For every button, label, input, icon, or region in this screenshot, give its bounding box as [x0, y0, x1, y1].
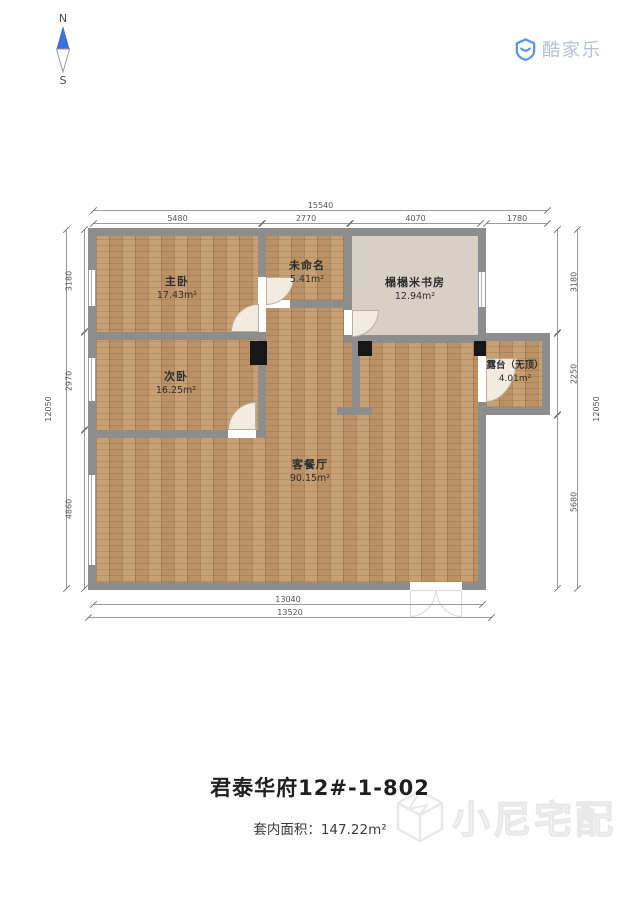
wall [478, 407, 550, 415]
door-opening [228, 430, 256, 438]
dim-left-seg-2: 2970 [84, 332, 85, 430]
plan-area-text: 套内面积：147.22m² [0, 818, 640, 838]
column [250, 341, 267, 365]
dim-bottom-inner: 13040 [93, 604, 483, 605]
room-label-terrace: 露台（无顶） 4.01m² [474, 361, 556, 384]
window [88, 475, 96, 565]
window [88, 358, 96, 401]
door-opening [344, 310, 352, 335]
dim-right-seg-3: 5680 [557, 415, 558, 588]
dim-bottom-outer: 13520 [88, 617, 492, 618]
window [478, 272, 486, 307]
room-label-living-dining: 客餐厅 90.15m² [260, 459, 360, 485]
kujiale-logo-text: 酷家乐 [542, 36, 602, 62]
plan-title: 君泰华府12#-1-802 [0, 772, 640, 802]
dim-right-overall: 12050 [577, 230, 578, 588]
wall [88, 332, 266, 340]
room-label-second-bedroom: 次卧 16.25m² [126, 371, 226, 397]
dim-top-seg-4: 1780 [486, 223, 548, 224]
area-value: 147.22m² [321, 822, 387, 838]
north-arrow-icon [55, 26, 71, 74]
wall [290, 300, 352, 308]
column [358, 341, 372, 356]
wall [337, 407, 372, 415]
dim-top-overall: 15540 [93, 210, 548, 211]
wall [256, 430, 266, 438]
dim-left-seg-1: 3180 [84, 230, 85, 332]
window [88, 270, 96, 306]
column [474, 341, 486, 356]
kujiale-shield-icon [514, 38, 537, 61]
dim-top-seg-2: 2770 [262, 223, 350, 224]
room-label-unnamed: 未命名 5.41m² [257, 260, 357, 286]
compass-north-label: N [48, 12, 78, 26]
door-opening [410, 582, 462, 590]
wall [478, 333, 550, 341]
floorplan-page: N S 酷家乐 [0, 0, 640, 905]
compass: N S [48, 12, 78, 88]
room-label-master-bedroom: 主卧 17.43m² [127, 276, 227, 302]
dim-top-seg-1: 5480 [93, 223, 262, 224]
dim-top-seg-3: 4070 [350, 223, 481, 224]
compass-south-label: S [48, 74, 78, 88]
dim-right-seg-2: 2250 [557, 333, 558, 415]
wall [88, 430, 228, 438]
room-label-tatami-study: 榻榻米书房 12.94m² [365, 277, 465, 303]
area-label: 套内面积： [253, 822, 321, 838]
kujiale-logo[interactable]: 酷家乐 [514, 36, 602, 62]
dim-right-seg-1: 3180 [557, 230, 558, 333]
dim-left-seg-3: 4860 [84, 430, 85, 588]
wall [88, 228, 486, 236]
